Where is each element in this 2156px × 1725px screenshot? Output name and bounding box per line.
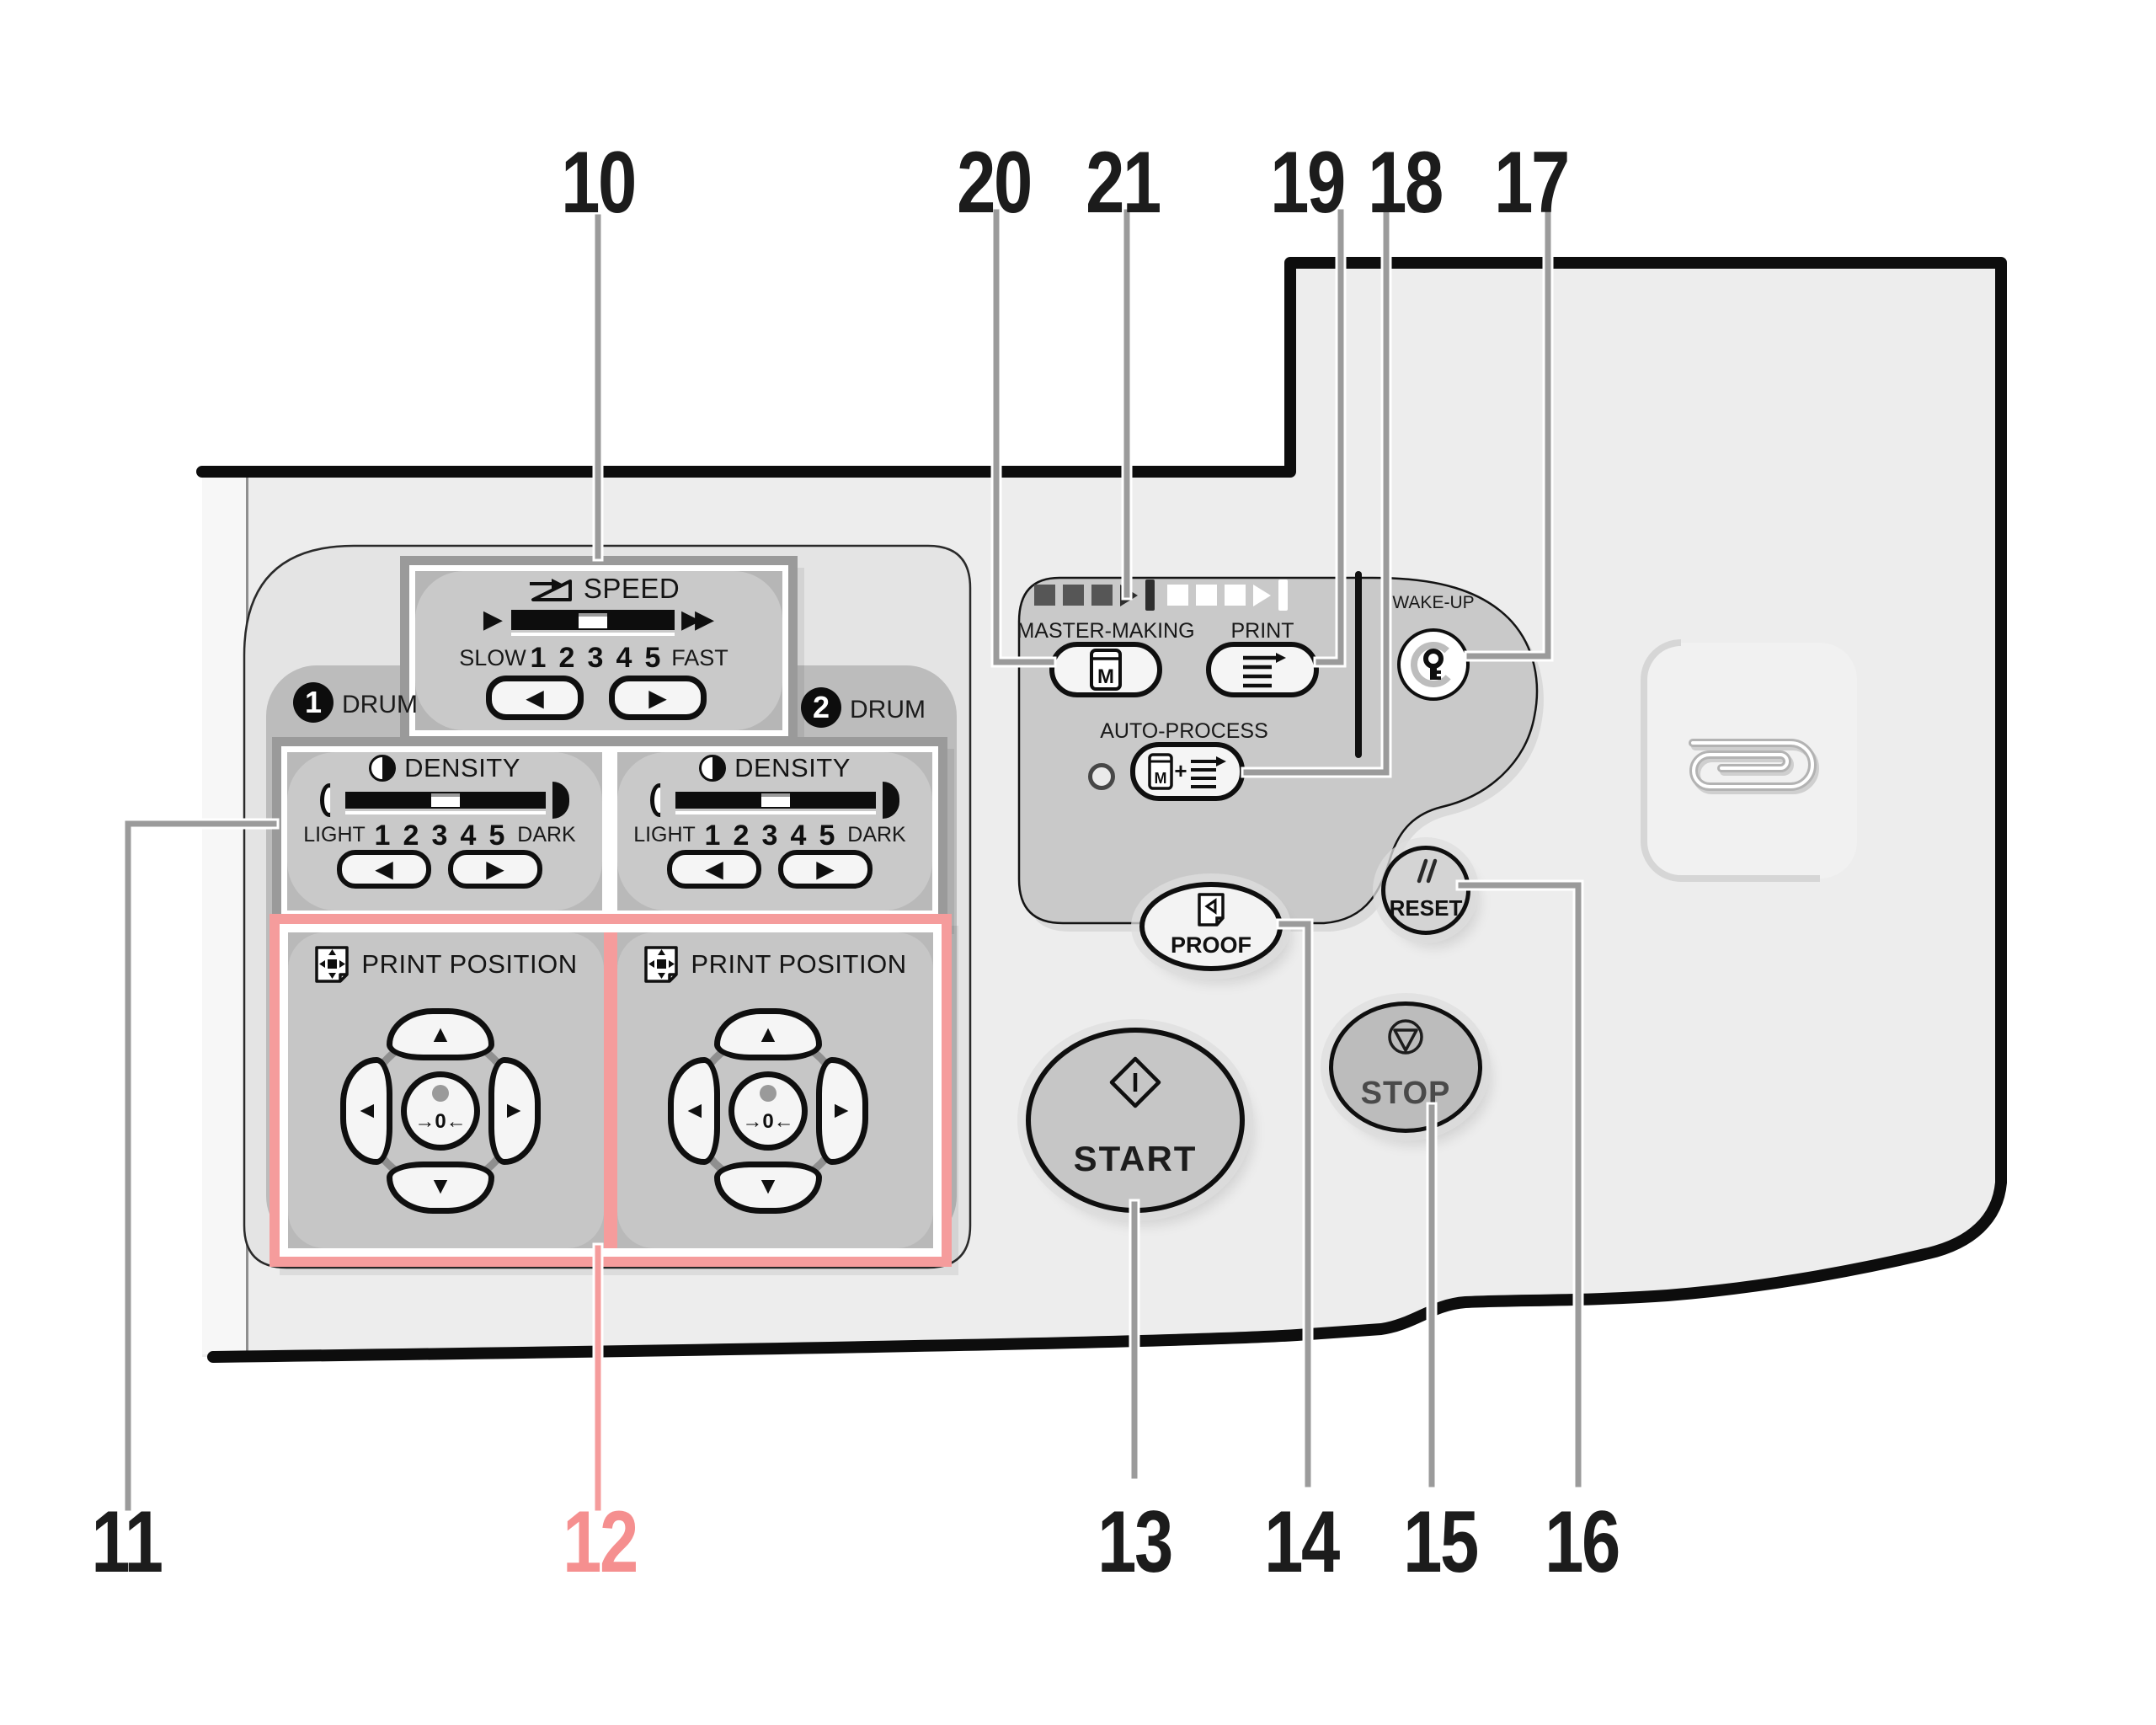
indicator-square-dark (1034, 585, 1055, 606)
indicator-bar-dark (1145, 579, 1155, 611)
density-contrast-icon (369, 755, 396, 782)
drum1-label: DRUM (342, 691, 418, 719)
print-position-divider (604, 932, 617, 1248)
callout-14: 14 (1264, 1493, 1338, 1593)
print-position-panel: PRINT POSITION ▲ ▲ ▲ (269, 914, 952, 1267)
density-panel: DENSITY LIGHT 1 2 3 (272, 737, 947, 926)
print-position-title: PRINT POSITION (361, 949, 577, 980)
svg-text:+: + (1174, 758, 1187, 783)
callout-15: 15 (1403, 1493, 1477, 1593)
auto-process-label: AUTO-PROCESS (1100, 719, 1268, 744)
progress-indicator (1034, 579, 1288, 611)
start-icon (1107, 1055, 1163, 1110)
callout-19: 19 (1270, 133, 1344, 233)
speed-fast-label: FAST (671, 645, 728, 671)
density-light-label: LIGHT (303, 823, 366, 847)
callout-16: 16 (1545, 1493, 1619, 1593)
indicator-bar-light (1278, 579, 1288, 611)
down-arrow-icon: ▲ (429, 1176, 452, 1199)
drum2-density-section: DENSITY LIGHT 1 2 3 (617, 752, 932, 911)
proof-icon (1197, 892, 1225, 927)
drum1-position-down-button[interactable]: ▲ (387, 1162, 494, 1214)
drum1-position-up-button[interactable]: ▲ (387, 1008, 494, 1060)
drum2-print-position-dpad: ▲ ▲ ▲ ▲ →0← (671, 985, 865, 1237)
speed-ramp-icon (518, 575, 574, 602)
svg-text:M: M (1097, 665, 1114, 688)
drum2-print-position-section: PRINT POSITION ▲ ▲ ▲ (617, 932, 933, 1248)
density-dark-end-icon (552, 782, 569, 819)
print-button[interactable] (1206, 642, 1319, 697)
reset-label: RESET (1385, 895, 1466, 921)
right-arrow-icon: ▶ (486, 857, 504, 881)
indicator-square-light (1167, 585, 1188, 606)
down-arrow-icon: ▲ (756, 1176, 780, 1199)
master-making-icon: M (1089, 648, 1123, 692)
center-dot-icon (760, 1085, 776, 1102)
stop-icon (1386, 1017, 1425, 1056)
density-slider (345, 792, 546, 809)
speed-down-button[interactable]: ◀ (486, 676, 584, 720)
left-arrow-icon: ▲ (682, 1099, 706, 1123)
drum1-position-right-button[interactable]: ▲ (488, 1057, 541, 1165)
speed-panel: SPEED ▶ ▶ ▶ SLOW 1 2 3 (400, 556, 798, 745)
drum2-density-darker-button[interactable]: ▶ (778, 850, 873, 889)
print-position-icon (643, 944, 680, 985)
print-icon (1238, 651, 1287, 688)
print-position-icon (314, 944, 351, 985)
density-divider (602, 752, 617, 911)
indicator-square-dark (1091, 585, 1113, 606)
drum1-position-center-button[interactable]: →0← (401, 1071, 480, 1151)
callout-21: 21 (1086, 133, 1160, 233)
indicator-arrow-light (1253, 585, 1271, 606)
reset-button[interactable]: RESET (1381, 846, 1470, 935)
master-making-label: MASTER-MAKING (1017, 619, 1194, 644)
center-zero-label: →0← (734, 1110, 802, 1134)
drum1-print-position-dpad: ▲ ▲ ▲ ▲ →0← (344, 985, 537, 1237)
drum1-position-left-button[interactable]: ▲ (340, 1057, 392, 1165)
speed-scale-row: SLOW 1 2 3 4 5 FAST (415, 642, 782, 672)
callout-20: 20 (957, 133, 1031, 233)
indicator-square-dark (1063, 585, 1084, 606)
right-arrow-icon: ▶ (816, 857, 835, 881)
start-button[interactable]: START (1026, 1028, 1245, 1213)
drum2-position-down-button[interactable]: ▲ (714, 1162, 822, 1214)
drum1-print-position-section: PRINT POSITION ▲ ▲ ▲ (288, 932, 604, 1248)
left-arrow-icon: ▲ (355, 1099, 378, 1123)
indicator-square-light (1225, 585, 1246, 606)
master-making-button[interactable]: M (1049, 642, 1162, 697)
speed-slider (511, 610, 675, 630)
process-divider-bar (1355, 571, 1362, 758)
density-title: DENSITY (404, 753, 520, 783)
control-panel-diagram: SPEED ▶ ▶ ▶ SLOW 1 2 3 (0, 0, 2156, 1725)
left-arrow-icon: ◀ (705, 857, 723, 881)
right-arrow-icon: ▲ (503, 1099, 526, 1123)
callout-13: 13 (1097, 1493, 1171, 1593)
stop-label: STOP (1333, 1076, 1478, 1112)
callout-18: 18 (1368, 133, 1442, 233)
drum1-density-darker-button[interactable]: ▶ (448, 850, 542, 889)
right-arrow-icon: ▲ (830, 1099, 854, 1123)
wake-up-label: WAKE-UP (1392, 593, 1474, 613)
drum1-density-lighter-button[interactable]: ◀ (337, 850, 431, 889)
left-edge-highlight (202, 477, 246, 1354)
speed-min-arrow-icon: ▶ (483, 607, 503, 633)
drum2-position-center-button[interactable]: →0← (728, 1071, 808, 1151)
print-label: PRINT (1231, 619, 1294, 644)
density-dark-end-icon (883, 782, 899, 819)
center-zero-label: →0← (407, 1110, 474, 1134)
indicator-arrow-dark (1120, 585, 1138, 606)
density-dark-label: DARK (847, 823, 905, 847)
density-dark-label: DARK (517, 823, 575, 847)
density-light-end-icon (320, 783, 339, 817)
left-arrow-icon: ◀ (526, 686, 544, 710)
up-arrow-icon: ▲ (756, 1023, 780, 1046)
right-arrow-icon: ▶ (648, 686, 667, 710)
wake-up-key-icon (1409, 640, 1458, 689)
callout-17: 17 (1494, 133, 1568, 233)
wake-up-button[interactable] (1397, 628, 1470, 701)
density-slider (675, 792, 876, 809)
drum2-position-up-button[interactable]: ▲ (714, 1008, 822, 1060)
proof-label: PROOF (1145, 932, 1278, 959)
auto-process-icon: M + (1147, 751, 1228, 792)
speed-up-button[interactable]: ▶ (609, 676, 707, 720)
density-light-label: LIGHT (633, 823, 696, 847)
density-light-end-icon (650, 783, 669, 817)
drum1-density-section: DENSITY LIGHT 1 2 3 (287, 752, 602, 911)
callout-12: 12 (563, 1493, 637, 1593)
center-dot-icon (432, 1085, 449, 1102)
svg-text:M: M (1155, 770, 1167, 787)
up-arrow-icon: ▲ (429, 1023, 452, 1046)
density-title: DENSITY (734, 753, 851, 783)
speed-title-row: SPEED (415, 574, 782, 603)
reset-slashes-icon (1412, 858, 1440, 884)
drum2-position-right-button[interactable]: ▲ (816, 1057, 868, 1165)
speed-slow-label: SLOW (459, 645, 526, 671)
drum2-label: DRUM (850, 696, 926, 724)
callout-11: 11 (91, 1493, 161, 1593)
start-label: START (1031, 1139, 1240, 1179)
auto-process-button[interactable]: M + (1130, 742, 1245, 801)
stop-button[interactable]: STOP (1329, 1001, 1482, 1133)
drum1-badge: 1 (293, 682, 334, 723)
proof-button[interactable]: PROOF (1139, 882, 1283, 971)
auto-process-led (1088, 763, 1115, 790)
print-position-title: PRINT POSITION (691, 949, 906, 980)
density-contrast-icon (699, 755, 726, 782)
left-arrow-icon: ◀ (375, 857, 393, 881)
drum2-badge: 2 (801, 687, 841, 728)
speed-title: SPEED (584, 573, 680, 605)
speed-slider-row: ▶ ▶ ▶ (415, 606, 782, 633)
drum2-density-lighter-button[interactable]: ◀ (667, 850, 761, 889)
callout-10: 10 (561, 133, 635, 233)
indicator-square-light (1196, 585, 1217, 606)
drum2-position-left-button[interactable]: ▲ (668, 1057, 720, 1165)
